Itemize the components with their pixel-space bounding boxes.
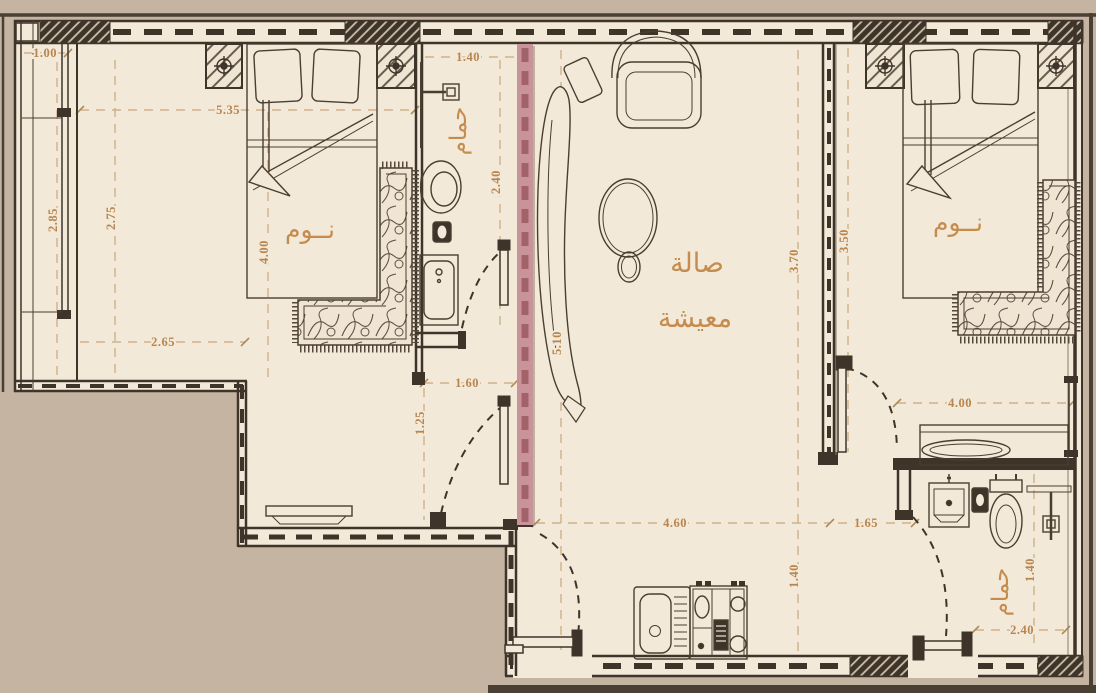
label-living-line2: معيشة	[658, 303, 732, 334]
drain-box-right	[972, 488, 988, 512]
floor-drain-left	[433, 222, 451, 242]
dim-bathroom-right-width: 2.40	[1010, 623, 1034, 637]
dim-bathroom-right-depth: 1.40	[1023, 558, 1037, 582]
highlight-wall	[517, 44, 533, 527]
dim-bathroom-left-width: 1.40	[456, 50, 480, 64]
dim-balcony-depth: 2.85	[46, 208, 60, 232]
dim-living-east-depth: 3.70	[787, 249, 801, 273]
label-living-line1: صالة	[670, 248, 724, 279]
dim-hall-width: 1.60	[455, 376, 479, 390]
dim-bedroom-left-depth: 2.75	[104, 206, 118, 230]
dim-entry-width: 2.65	[151, 335, 175, 349]
label-bedroom-right: نــوم	[933, 208, 983, 237]
label-bedroom-left: نــوم	[285, 215, 335, 244]
dim-vanity-width: 4.00	[948, 396, 972, 410]
label-bathroom-right: حمام	[988, 568, 1014, 617]
dim-kitchen-offset: 1.40	[787, 564, 801, 588]
dim-bedroom-right-depth: 3.50	[837, 229, 851, 253]
dim-bathroom-left-depth: 2.40	[489, 170, 503, 194]
dim-living-bottom-width: 4.60	[663, 516, 687, 530]
dim-bedroom-left-inner: 4.00	[257, 240, 271, 264]
dim-bedroom-left-width: 5.35	[216, 103, 240, 117]
dim-living-depth: 5.10	[550, 331, 564, 355]
dim-bathroom-right-offset: 1.65	[854, 516, 878, 530]
dim-hall-depth: 1.25	[413, 411, 427, 435]
label-bathroom-left: حمام	[446, 107, 472, 156]
dim-balcony-width: 1.00	[33, 46, 57, 60]
floor-plan-canvas: نــوم نــوم حمام حمام صالة معيشة 1.00 5.…	[0, 0, 1096, 693]
floor-plan-drawing: نــوم نــوم حمام حمام صالة معيشة 1.00 5.…	[0, 0, 1096, 693]
